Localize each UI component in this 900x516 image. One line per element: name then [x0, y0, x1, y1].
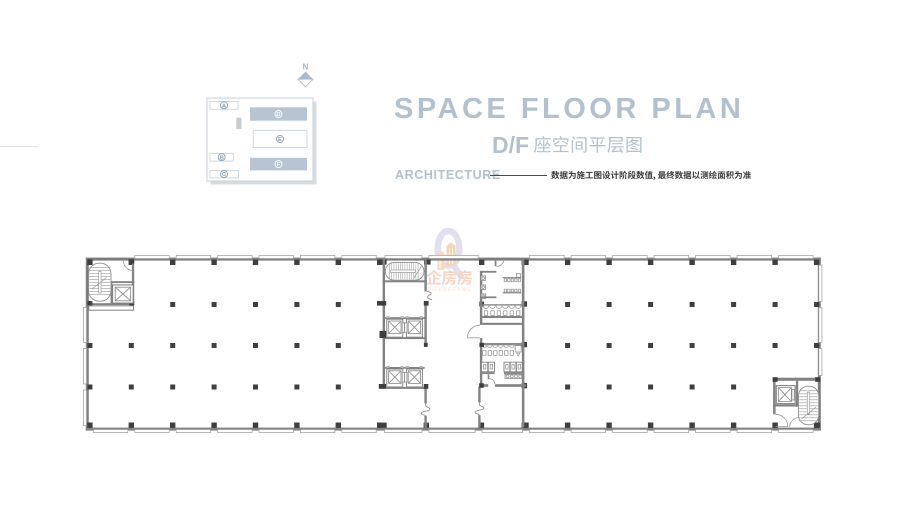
svg-text:E: E — [278, 137, 282, 143]
svg-text:N: N — [303, 63, 309, 72]
svg-text:B: B — [220, 155, 224, 161]
svg-text:D: D — [276, 112, 280, 118]
svg-text:C: C — [222, 172, 227, 178]
svg-text:QIFANGFANG: QIFANGFANG — [427, 287, 471, 293]
svg-text:A: A — [222, 103, 227, 109]
svg-text:F: F — [277, 162, 281, 168]
